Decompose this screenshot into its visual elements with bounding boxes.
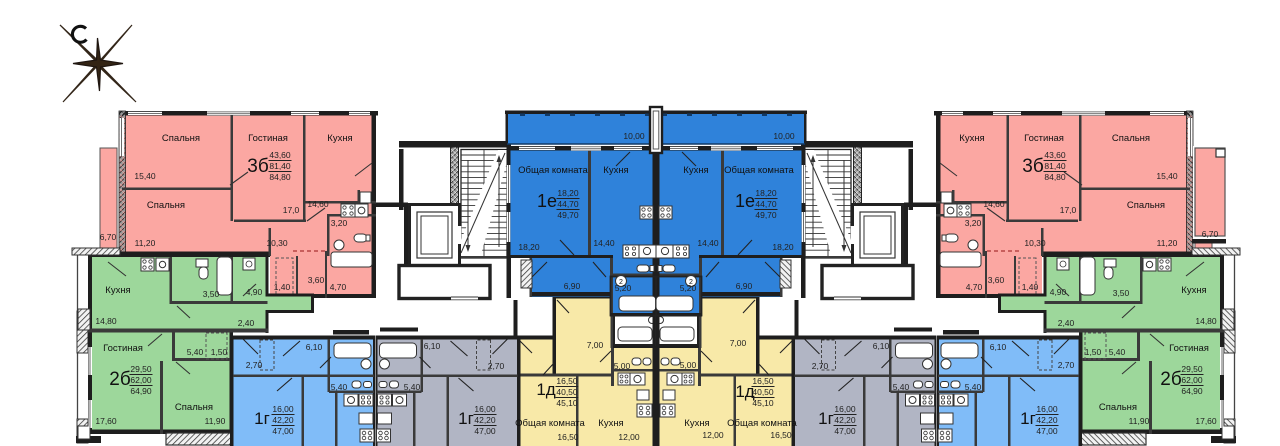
svg-text:Кухня: Кухня xyxy=(327,133,352,144)
svg-text:16,50: 16,50 xyxy=(752,376,774,386)
svg-text:11,20: 11,20 xyxy=(1157,238,1178,248)
svg-text:43,60: 43,60 xyxy=(1044,150,1066,160)
svg-text:47,00: 47,00 xyxy=(272,426,294,436)
svg-text:3,60: 3,60 xyxy=(988,275,1005,285)
svg-text:Кухня: Кухня xyxy=(683,165,708,176)
svg-text:16,50: 16,50 xyxy=(556,376,578,386)
svg-text:44,70: 44,70 xyxy=(755,199,777,209)
svg-text:17,60: 17,60 xyxy=(95,416,117,426)
svg-text:Общая комната: Общая комната xyxy=(727,418,797,429)
svg-text:17,0: 17,0 xyxy=(1060,205,1077,215)
svg-text:14,80: 14,80 xyxy=(95,316,117,326)
svg-text:16,00: 16,00 xyxy=(474,404,496,414)
svg-text:10,00: 10,00 xyxy=(773,131,795,141)
svg-text:6,70: 6,70 xyxy=(100,232,117,242)
svg-text:6,90: 6,90 xyxy=(564,281,581,291)
svg-text:81,40: 81,40 xyxy=(1044,161,1066,171)
svg-text:11,90: 11,90 xyxy=(205,416,226,426)
svg-text:5,00: 5,00 xyxy=(614,361,631,371)
svg-text:Гостиная: Гостиная xyxy=(1024,133,1064,144)
svg-text:29,50: 29,50 xyxy=(130,364,152,374)
svg-text:Кухня: Кухня xyxy=(684,418,709,429)
svg-text:1г: 1г xyxy=(254,409,270,428)
svg-text:Гостиная: Гостиная xyxy=(103,343,143,354)
svg-text:Общая комната: Общая комната xyxy=(724,165,794,176)
svg-text:42,20: 42,20 xyxy=(272,415,294,425)
svg-text:3,60: 3,60 xyxy=(308,275,325,285)
svg-text:6,10: 6,10 xyxy=(873,341,890,351)
svg-text:3,20: 3,20 xyxy=(331,218,348,228)
svg-text:5,20: 5,20 xyxy=(615,283,632,293)
svg-text:1,50: 1,50 xyxy=(1085,347,1102,357)
svg-text:18,20: 18,20 xyxy=(772,242,794,252)
svg-text:16,50: 16,50 xyxy=(770,430,792,440)
svg-text:18,20: 18,20 xyxy=(755,188,777,198)
svg-text:18,20: 18,20 xyxy=(557,188,579,198)
svg-text:5,00: 5,00 xyxy=(680,360,697,370)
svg-text:14,80: 14,80 xyxy=(1195,316,1217,326)
svg-text:6,70: 6,70 xyxy=(1202,229,1219,239)
svg-text:43,60: 43,60 xyxy=(269,150,291,160)
svg-text:1,40: 1,40 xyxy=(1022,282,1039,292)
svg-text:3б: 3б xyxy=(1022,156,1044,177)
svg-text:Общая комната: Общая комната xyxy=(518,165,588,176)
svg-text:62,00: 62,00 xyxy=(1181,375,1203,385)
svg-text:45,10: 45,10 xyxy=(752,398,774,408)
svg-text:49,70: 49,70 xyxy=(755,210,777,220)
svg-text:12,00: 12,00 xyxy=(702,430,724,440)
svg-text:14,40: 14,40 xyxy=(697,238,719,248)
svg-text:Спальня: Спальня xyxy=(147,200,185,211)
svg-text:1е: 1е xyxy=(735,191,755,211)
svg-text:42,20: 42,20 xyxy=(474,415,496,425)
svg-text:Кухня: Кухня xyxy=(1181,285,1206,296)
svg-text:4,70: 4,70 xyxy=(966,282,983,292)
svg-text:10,30: 10,30 xyxy=(266,238,288,248)
svg-text:1г: 1г xyxy=(1020,409,1036,428)
svg-text:5,40: 5,40 xyxy=(331,382,348,392)
svg-text:Кухня: Кухня xyxy=(598,418,623,429)
svg-text:1г: 1г xyxy=(458,409,474,428)
svg-text:12,00: 12,00 xyxy=(618,432,640,442)
svg-text:4,90: 4,90 xyxy=(1050,287,1067,297)
svg-text:10,30: 10,30 xyxy=(1024,238,1046,248)
svg-text:64,90: 64,90 xyxy=(1181,386,1203,396)
svg-text:2б: 2б xyxy=(1160,369,1182,390)
svg-text:49,70: 49,70 xyxy=(557,210,579,220)
svg-text:1е: 1е xyxy=(537,191,557,211)
svg-text:17,0: 17,0 xyxy=(283,205,300,215)
svg-text:44,70: 44,70 xyxy=(557,199,579,209)
svg-text:5,40: 5,40 xyxy=(1109,347,1126,357)
svg-text:40,50: 40,50 xyxy=(752,387,774,397)
svg-text:4,90: 4,90 xyxy=(246,287,263,297)
svg-text:16,00: 16,00 xyxy=(1036,404,1058,414)
svg-text:3,50: 3,50 xyxy=(1113,288,1130,298)
svg-text:16,00: 16,00 xyxy=(834,404,856,414)
svg-text:81,40: 81,40 xyxy=(269,161,291,171)
svg-text:5,40: 5,40 xyxy=(187,347,204,357)
svg-text:42,20: 42,20 xyxy=(834,415,856,425)
svg-text:62,00: 62,00 xyxy=(130,375,152,385)
svg-text:45,10: 45,10 xyxy=(556,398,578,408)
svg-text:2: 2 xyxy=(619,279,623,286)
svg-text:2,70: 2,70 xyxy=(246,360,263,370)
svg-text:64,90: 64,90 xyxy=(130,386,152,396)
svg-text:2,40: 2,40 xyxy=(238,318,255,328)
svg-text:1д: 1д xyxy=(536,380,555,399)
svg-text:10,00: 10,00 xyxy=(623,131,645,141)
svg-text:14,60: 14,60 xyxy=(983,199,1005,209)
svg-text:7,00: 7,00 xyxy=(730,338,747,348)
svg-text:29,50: 29,50 xyxy=(1181,364,1203,374)
svg-text:2,70: 2,70 xyxy=(812,361,829,371)
svg-text:40,50: 40,50 xyxy=(556,387,578,397)
svg-text:42,20: 42,20 xyxy=(1036,415,1058,425)
svg-text:2: 2 xyxy=(689,279,693,286)
svg-text:Гостиная: Гостиная xyxy=(248,133,288,144)
svg-text:5,40: 5,40 xyxy=(404,382,421,392)
svg-text:47,00: 47,00 xyxy=(1036,426,1058,436)
svg-text:Спальня: Спальня xyxy=(1099,402,1137,413)
svg-text:15,40: 15,40 xyxy=(134,171,156,181)
svg-text:15,40: 15,40 xyxy=(1156,171,1178,181)
svg-text:11,20: 11,20 xyxy=(135,238,156,248)
svg-text:2б: 2б xyxy=(109,369,131,390)
svg-text:84,80: 84,80 xyxy=(269,172,291,182)
svg-text:5,40: 5,40 xyxy=(893,382,910,392)
svg-text:Спальня: Спальня xyxy=(1127,200,1165,211)
svg-text:2,70: 2,70 xyxy=(488,361,505,371)
svg-text:1,50: 1,50 xyxy=(211,347,228,357)
svg-text:5,40: 5,40 xyxy=(965,382,982,392)
svg-text:14,40: 14,40 xyxy=(593,238,615,248)
svg-text:1г: 1г xyxy=(818,409,834,428)
svg-text:Спальня: Спальня xyxy=(1112,133,1150,144)
svg-text:Спальня: Спальня xyxy=(162,133,200,144)
svg-text:Общая комната: Общая комната xyxy=(515,418,585,429)
svg-text:18,20: 18,20 xyxy=(518,242,540,252)
svg-text:3б: 3б xyxy=(247,156,269,177)
svg-text:84,80: 84,80 xyxy=(1044,172,1066,182)
svg-text:11,90: 11,90 xyxy=(1129,416,1150,426)
svg-text:17,60: 17,60 xyxy=(1195,416,1217,426)
svg-text:47,00: 47,00 xyxy=(834,426,856,436)
svg-text:6,10: 6,10 xyxy=(306,342,323,352)
svg-text:6,10: 6,10 xyxy=(424,341,441,351)
svg-text:47,00: 47,00 xyxy=(474,426,496,436)
svg-text:2,70: 2,70 xyxy=(1058,360,1075,370)
svg-text:Кухня: Кухня xyxy=(603,165,628,176)
svg-text:Кухня: Кухня xyxy=(105,285,130,296)
svg-text:6,10: 6,10 xyxy=(990,342,1007,352)
svg-text:14,60: 14,60 xyxy=(307,199,329,209)
svg-text:6,90: 6,90 xyxy=(736,281,753,291)
svg-text:16,00: 16,00 xyxy=(272,404,294,414)
svg-text:Спальня: Спальня xyxy=(175,402,213,413)
svg-text:Кухня: Кухня xyxy=(959,133,984,144)
svg-text:4,70: 4,70 xyxy=(330,282,347,292)
svg-text:16,50: 16,50 xyxy=(557,432,579,442)
svg-text:1,40: 1,40 xyxy=(274,282,291,292)
svg-text:2,40: 2,40 xyxy=(1058,318,1075,328)
svg-text:3,20: 3,20 xyxy=(965,218,982,228)
svg-text:Гостиная: Гостиная xyxy=(1169,343,1209,354)
svg-text:3,50: 3,50 xyxy=(203,289,220,299)
svg-text:7,00: 7,00 xyxy=(587,340,604,350)
